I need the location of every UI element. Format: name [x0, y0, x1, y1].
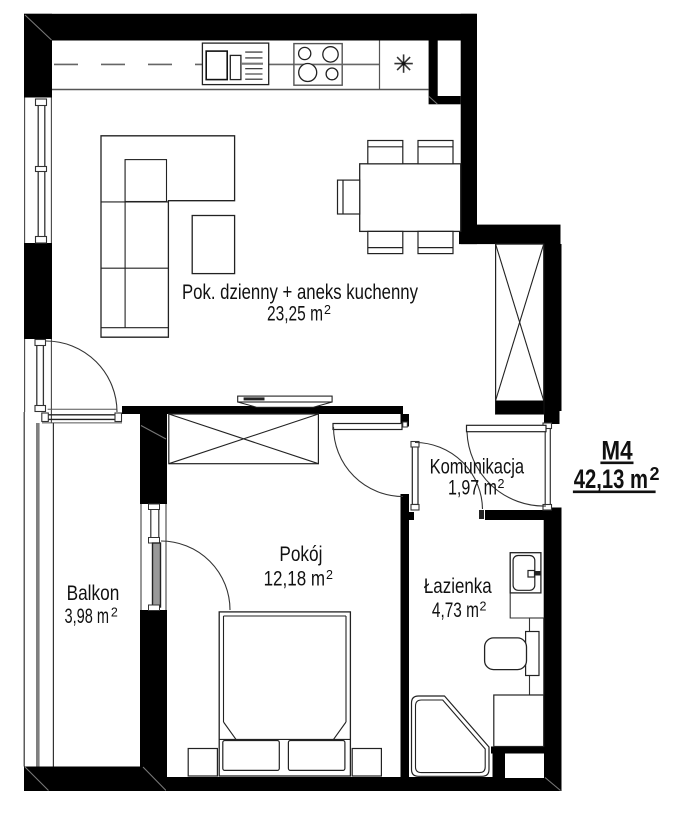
svg-text:M4: M4	[601, 436, 632, 466]
svg-text:4,73 m: 4,73 m	[432, 599, 479, 622]
svg-text:Pokój: Pokój	[279, 543, 322, 566]
svg-text:2: 2	[326, 568, 333, 582]
svg-text:2: 2	[650, 464, 660, 484]
svg-text:2: 2	[498, 477, 505, 491]
svg-text:2: 2	[324, 303, 331, 317]
svg-text:2: 2	[480, 600, 487, 614]
svg-text:42,13 m: 42,13 m	[574, 464, 648, 494]
svg-text:Pok. dzienny + aneks kuchenny: Pok. dzienny + aneks kuchenny	[182, 281, 418, 304]
svg-text:12,18 m: 12,18 m	[264, 567, 326, 590]
svg-text:3,98 m: 3,98 m	[65, 605, 110, 628]
svg-text:Balkon: Balkon	[67, 582, 120, 605]
svg-text:Komunikacja: Komunikacja	[430, 456, 525, 479]
svg-text:1,97 m: 1,97 m	[448, 477, 497, 500]
svg-text:2: 2	[111, 606, 118, 620]
svg-text:Łazienka: Łazienka	[424, 575, 492, 598]
svg-text:23,25 m: 23,25 m	[267, 303, 323, 326]
